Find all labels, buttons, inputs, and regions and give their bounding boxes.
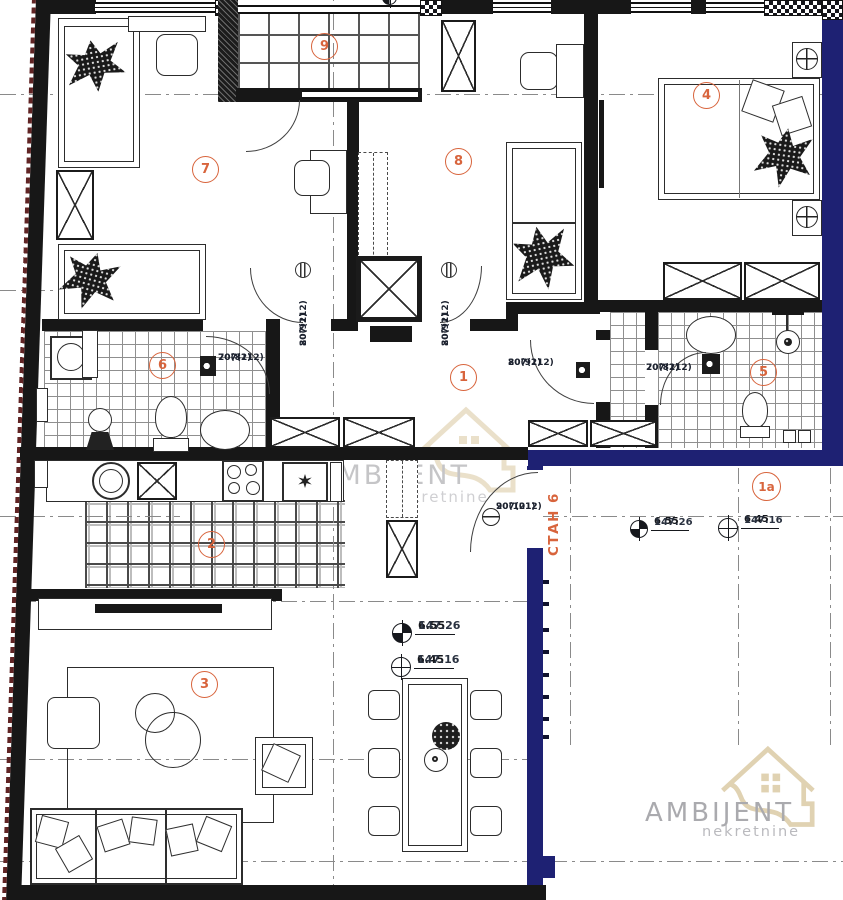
table-bowl-dot xyxy=(432,756,438,762)
sink xyxy=(686,316,736,354)
room-number-8: 8 xyxy=(445,148,472,175)
toilet-tank xyxy=(153,438,189,452)
railing-tick xyxy=(543,673,549,677)
toilet-bowl xyxy=(742,392,768,428)
dining-chair xyxy=(470,748,502,778)
wardrobe xyxy=(663,262,742,300)
benchmark-icon xyxy=(382,0,397,5)
bidet xyxy=(88,408,112,432)
burner xyxy=(246,481,260,495)
bed-center-line xyxy=(739,80,740,198)
dining-chair xyxy=(368,690,400,720)
washer-drum xyxy=(57,343,85,371)
desk-chair xyxy=(156,34,198,76)
boundary-wall-right xyxy=(822,20,843,466)
mattress xyxy=(64,26,134,162)
wall-insulation xyxy=(822,0,843,20)
kitchen-sink-inner xyxy=(99,469,123,493)
balcony-door-window xyxy=(302,90,418,99)
door-hinge xyxy=(702,354,720,374)
fridge xyxy=(330,462,342,502)
shaft xyxy=(356,256,422,322)
elevation-marker: 6.45 147.16 xyxy=(718,516,798,550)
sofa-divider xyxy=(95,810,97,883)
wall-room8-room4 xyxy=(584,14,598,314)
door-height: 207(212) xyxy=(297,300,311,346)
door-height: 207(212) xyxy=(646,361,692,375)
railing-tick xyxy=(543,628,549,632)
desk xyxy=(128,16,206,32)
elevation-marker: 6.55 147.26 xyxy=(392,621,472,655)
apartment-label: СТАН 6 xyxy=(546,484,562,556)
appliance-block xyxy=(370,326,412,342)
wall xyxy=(470,319,508,331)
boiler xyxy=(783,430,796,443)
door-hinge xyxy=(576,362,590,378)
railing-tick xyxy=(543,602,549,606)
wardrobe xyxy=(441,20,476,92)
window xyxy=(631,2,691,13)
sofa-divider xyxy=(165,810,167,883)
window xyxy=(95,2,215,13)
benchmark-icon xyxy=(392,623,412,643)
elevation-marker-cropped: 6.55 147.26 xyxy=(382,0,462,22)
elevation-marker: 6.55 147.26 xyxy=(630,518,710,552)
elevation-absolute: 147.26 xyxy=(651,516,693,530)
shower-bar xyxy=(772,306,804,315)
railing-tick xyxy=(543,580,549,584)
door-hinge xyxy=(200,356,216,376)
desk xyxy=(556,44,584,98)
benchmark-icon xyxy=(391,657,411,677)
toilet-tank xyxy=(740,426,770,438)
bed-divider xyxy=(512,222,576,224)
benchmark-icon xyxy=(630,520,648,538)
reference-line xyxy=(543,516,843,517)
elevation-absolute: 147.16 xyxy=(741,514,783,528)
reference-line xyxy=(830,462,831,745)
lamp-icon xyxy=(796,206,818,228)
closet xyxy=(343,417,415,448)
desk-chair xyxy=(520,52,558,90)
top-wall xyxy=(691,0,706,14)
radiator xyxy=(36,388,48,422)
window xyxy=(493,2,551,13)
elevation-absolute: 147.26 xyxy=(415,619,460,634)
door-arc xyxy=(250,268,303,323)
dining-chair xyxy=(470,690,502,720)
cabinet xyxy=(82,330,98,378)
elevation-marker: 6.45 147.16 xyxy=(391,655,471,689)
room-number-2: 2 xyxy=(198,531,225,558)
wall-insulation xyxy=(764,0,822,16)
shower-drain xyxy=(784,338,792,346)
tall-cabinet xyxy=(386,460,418,518)
lamp-icon xyxy=(796,48,818,70)
room-number-4: 4 xyxy=(693,82,720,109)
room-number-9: 9 xyxy=(311,33,338,60)
burner xyxy=(245,464,257,476)
boundary-wall-horizontal xyxy=(528,450,843,466)
counter-cabinet xyxy=(137,462,177,500)
boiler xyxy=(798,430,811,443)
coffee-table xyxy=(145,712,201,768)
door-arc xyxy=(246,100,300,152)
railing-tick xyxy=(543,650,549,654)
railing-tick xyxy=(543,695,549,699)
dining-chair xyxy=(368,748,400,778)
toilet-bowl xyxy=(155,396,187,438)
wall xyxy=(42,319,203,331)
table-plant xyxy=(432,722,460,750)
room-number-1a: 1a xyxy=(752,472,781,501)
reference-line xyxy=(570,462,571,745)
boundary-wall-nub xyxy=(543,856,555,878)
door-hinge-icon xyxy=(295,262,311,278)
top-wall xyxy=(40,0,96,14)
floor-plan: AMBIJENT nekretnine AMBIJENT nekretnine xyxy=(0,0,843,900)
wardrobe xyxy=(744,262,820,300)
door-height: 207(212) xyxy=(508,356,554,370)
pillow xyxy=(165,823,198,856)
tv xyxy=(95,604,222,613)
room-number-1: 1 xyxy=(450,364,477,391)
closet xyxy=(590,420,657,447)
room-number-6: 6 xyxy=(149,352,176,379)
burner xyxy=(228,482,240,494)
door-height: 207(212) xyxy=(218,351,264,365)
watermark-bottom-right: AMBIJENT nekretnine xyxy=(643,738,843,848)
sink xyxy=(200,410,250,450)
railing-tick xyxy=(543,735,549,739)
door-height: 207(212) xyxy=(496,500,542,514)
dining-chair xyxy=(368,806,400,836)
shower-stem xyxy=(786,315,788,331)
closet xyxy=(528,420,588,447)
boundary-wall-vertical xyxy=(527,466,543,470)
wall xyxy=(331,319,358,331)
reference-line xyxy=(738,462,739,745)
room-number-3: 3 xyxy=(191,671,218,698)
wardrobe xyxy=(56,170,94,240)
tall-cabinet xyxy=(386,520,418,578)
counter-segment xyxy=(34,460,48,488)
elevation-absolute: 147.16 xyxy=(414,653,459,668)
wall xyxy=(506,302,518,331)
pillow xyxy=(128,816,157,845)
room-number-5: 5 xyxy=(750,359,777,386)
burner xyxy=(227,465,241,479)
wall-vestibule xyxy=(596,330,610,340)
wall xyxy=(218,0,238,102)
door-hinge-icon xyxy=(441,262,457,278)
closet xyxy=(270,417,340,448)
watermark-subtitle: nekretnine xyxy=(702,824,800,840)
window xyxy=(706,2,764,13)
boundary-wall-vertical xyxy=(527,548,543,885)
side-table xyxy=(47,697,100,749)
door-height: 207(212) xyxy=(439,300,453,346)
railing-tick xyxy=(543,717,549,721)
top-wall xyxy=(551,0,631,14)
tv-sideboard xyxy=(38,598,272,630)
benchmark-icon xyxy=(718,518,738,538)
room-number-7: 7 xyxy=(192,156,219,183)
desk-chair xyxy=(294,160,330,196)
mirror xyxy=(599,100,604,188)
bottom-wall xyxy=(10,885,546,900)
dining-chair xyxy=(470,806,502,836)
